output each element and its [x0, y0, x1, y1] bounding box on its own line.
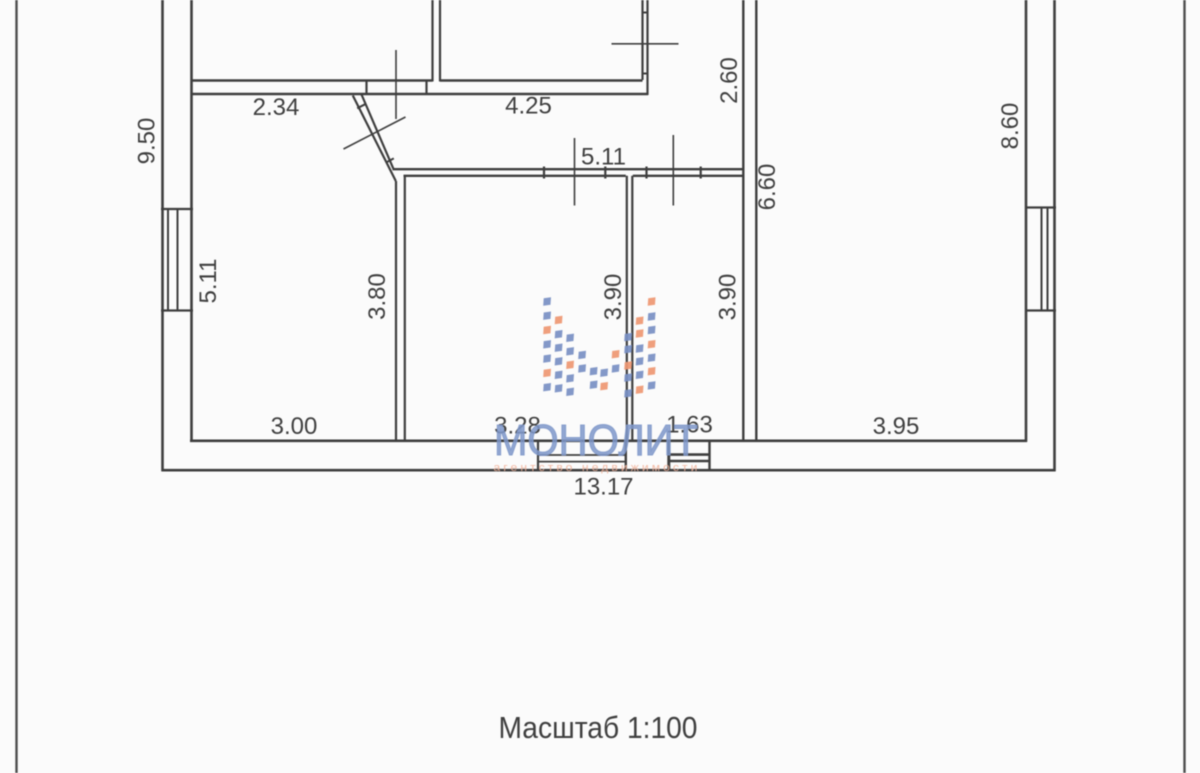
svg-text:3.90: 3.90 — [715, 274, 742, 321]
svg-text:6.60: 6.60 — [754, 164, 781, 211]
svg-text:9.50: 9.50 — [134, 118, 161, 165]
svg-text:3.90: 3.90 — [600, 274, 627, 321]
svg-text:3.95: 3.95 — [873, 413, 920, 440]
svg-text:5.11: 5.11 — [581, 144, 626, 171]
svg-text:2.60: 2.60 — [716, 57, 743, 104]
svg-text:агентство недвижимости: агентство недвижимости — [494, 462, 701, 474]
svg-text:МОНОЛИТ: МОНОЛИТ — [494, 416, 698, 465]
svg-text:4.25: 4.25 — [505, 93, 552, 120]
svg-text:5.11: 5.11 — [195, 259, 222, 304]
svg-text:8.60: 8.60 — [997, 103, 1024, 150]
svg-text:13.17: 13.17 — [573, 474, 633, 501]
svg-text:3.80: 3.80 — [364, 273, 391, 320]
svg-text:Масштаб 1:100: Масштаб 1:100 — [499, 710, 698, 745]
svg-text:2.34: 2.34 — [253, 94, 300, 121]
svg-text:3.00: 3.00 — [271, 413, 318, 440]
